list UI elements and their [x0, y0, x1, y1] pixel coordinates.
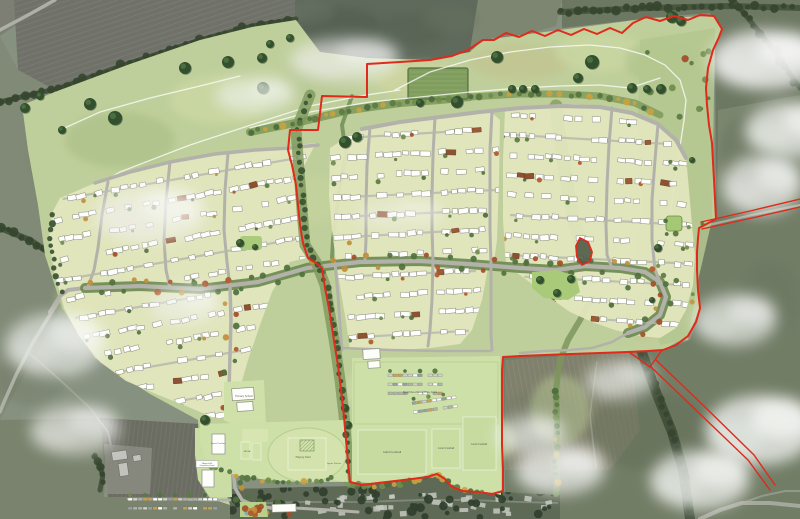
street-tree [127, 309, 131, 313]
avenue-tree [168, 280, 173, 285]
tree-highlight [59, 127, 63, 131]
house [134, 365, 143, 371]
street-tree [376, 179, 381, 184]
masterplan-screenshot: Neighbourhood Play AreaAdult FootballJun… [0, 0, 800, 519]
street-tree [232, 190, 235, 193]
house [675, 241, 684, 246]
tree-row-tree [298, 167, 305, 174]
buffer-tree [677, 114, 683, 120]
avenue-tree [628, 323, 633, 328]
cloud [495, 415, 565, 455]
village-tree [334, 500, 339, 505]
parked-car [413, 374, 417, 377]
house [453, 288, 463, 294]
tree-highlight [657, 85, 662, 90]
house [421, 191, 431, 197]
house [545, 154, 551, 159]
avenue-tree [658, 293, 663, 298]
house [583, 276, 593, 281]
street-tree [582, 280, 587, 285]
cloud [722, 155, 800, 215]
hedgerow-tree [770, 4, 779, 13]
avenue-tree [341, 265, 347, 271]
house [592, 298, 600, 303]
tree-highlight [201, 416, 206, 421]
house [341, 214, 351, 220]
map-label: Neighbourhood Play Area [403, 390, 438, 394]
parked-car [438, 374, 442, 377]
village-tree [373, 498, 378, 503]
village-tree [347, 488, 355, 496]
avenue-tree [234, 347, 239, 352]
hedgerow-tree [9, 227, 19, 237]
tree-row-tree [616, 97, 620, 101]
house [334, 235, 345, 240]
tree-row-tree [299, 199, 306, 206]
house [546, 134, 556, 139]
tree-row-tree [552, 388, 559, 395]
house [420, 151, 430, 156]
house [104, 290, 111, 296]
house [403, 331, 409, 337]
house [472, 127, 482, 132]
tree-row-tree [364, 104, 371, 111]
cloud-puff [217, 90, 257, 110]
parked-car [408, 383, 412, 386]
house [632, 218, 641, 222]
house [626, 300, 634, 305]
tree-highlight [509, 86, 513, 90]
centre-block [363, 349, 381, 360]
avenue-tree [223, 301, 228, 306]
parked-car [133, 507, 137, 510]
house [592, 117, 600, 123]
buffer-tree [661, 273, 666, 278]
house [173, 378, 182, 384]
tree-highlight [537, 277, 541, 281]
hedgerow-tree [789, 4, 795, 10]
house [417, 250, 423, 255]
parked-car [193, 498, 197, 501]
parked-car [398, 383, 402, 386]
house [633, 199, 640, 203]
street-tree [178, 344, 183, 349]
tree-row-tree [307, 116, 312, 121]
light-green-parcel [242, 429, 268, 442]
house [285, 237, 293, 242]
house [284, 177, 292, 184]
street-tree [394, 158, 397, 161]
house [357, 295, 365, 300]
hedgerow-tree [631, 5, 640, 14]
avenue-tree [286, 511, 292, 517]
cloud-puff [152, 299, 187, 321]
street-tree [197, 337, 201, 341]
cloud [650, 450, 750, 510]
avenue-tree [625, 261, 630, 266]
hedgerow-tree [589, 6, 597, 14]
avenue-tree [635, 273, 642, 280]
avenue-tree [424, 253, 429, 258]
street-tree [386, 277, 390, 281]
village-tree [542, 506, 547, 511]
buffer-tree [682, 55, 689, 62]
house [455, 129, 463, 135]
house [467, 188, 475, 192]
house [473, 287, 481, 292]
hedgerow-tree [33, 242, 41, 250]
house [410, 292, 418, 296]
house [72, 214, 79, 219]
parked-car [138, 507, 142, 510]
avenue-tree [448, 254, 453, 259]
street-tree [401, 315, 404, 318]
tree-row-tree [314, 479, 319, 484]
parked-car [398, 374, 402, 377]
house [550, 234, 558, 240]
house [613, 238, 619, 243]
map-label: Primary School [235, 394, 253, 398]
house [257, 181, 265, 187]
parked-car [433, 408, 438, 411]
street-tree [287, 200, 290, 203]
tree-row-tree [304, 234, 310, 240]
house [114, 349, 121, 355]
farm-building [111, 450, 127, 461]
buffer-tree [665, 232, 669, 236]
house [475, 148, 483, 153]
house [142, 303, 149, 308]
house [567, 257, 574, 261]
house [246, 265, 252, 270]
street-tree [494, 151, 499, 156]
tree-row-tree [56, 282, 60, 286]
house [677, 201, 687, 208]
street-tree [213, 215, 216, 218]
tree-row-tree [346, 109, 351, 114]
hedgerow-tree [558, 8, 564, 14]
cloud [5, 313, 105, 377]
parked-car [427, 399, 432, 402]
tree-row-tree [301, 216, 308, 223]
village-tree [500, 506, 505, 511]
tree-row-tree [48, 243, 53, 248]
tree-row-tree [244, 475, 251, 482]
house [529, 134, 535, 139]
house [263, 261, 270, 267]
street-tree [331, 181, 336, 186]
parked-car [403, 383, 407, 386]
tree-row-tree [297, 120, 303, 126]
tree-row-tree [476, 93, 483, 100]
street-tree [64, 281, 68, 285]
cloud-puff [695, 312, 737, 341]
avenue-tree [275, 279, 281, 285]
hedgerow-tree [582, 6, 588, 12]
buffer-tree [700, 51, 706, 57]
house [531, 235, 539, 240]
football-pitch [252, 443, 261, 460]
village-house [493, 508, 500, 513]
house [412, 191, 422, 197]
tree-highlight [628, 84, 633, 89]
parked-car [158, 498, 162, 501]
house [411, 151, 420, 156]
tree-row-tree [553, 394, 560, 401]
street-tree [401, 277, 405, 281]
parked-car [423, 409, 428, 412]
parked-car [208, 498, 212, 501]
village-house [459, 508, 468, 512]
tree-row-tree [380, 102, 386, 108]
street-tree [549, 158, 553, 162]
house [177, 357, 187, 364]
house [574, 296, 582, 301]
house [600, 298, 607, 303]
house [596, 216, 605, 222]
village-tree [418, 493, 422, 497]
house [345, 275, 354, 280]
house [458, 188, 466, 193]
street-tree [137, 330, 141, 334]
house [210, 332, 218, 337]
parked-car [433, 374, 437, 377]
parked-car [133, 498, 137, 501]
play-area-east [666, 216, 682, 231]
house [388, 232, 398, 237]
map-label: Community Centre [200, 464, 215, 467]
hedgerow-tree [667, 420, 673, 426]
parked-car [428, 374, 432, 377]
street-tree [435, 273, 440, 278]
avenue-tree [599, 270, 604, 275]
avenue-tree [233, 359, 237, 363]
village-tree [235, 502, 240, 507]
house [367, 334, 374, 339]
tree-row-tree [623, 98, 630, 105]
map-label: MUGA [244, 450, 251, 453]
hedgerow-tree [623, 4, 630, 11]
village-tree [411, 503, 419, 511]
parked-car [428, 408, 433, 411]
house [661, 321, 669, 327]
house [588, 196, 595, 202]
house [552, 214, 559, 220]
parked-car [178, 498, 182, 501]
centre-block [368, 361, 380, 369]
house [476, 188, 484, 193]
tree-highlight [353, 133, 358, 138]
house [684, 261, 693, 266]
parked-car [183, 498, 187, 501]
avenue-tree [650, 281, 656, 287]
house [465, 307, 474, 314]
tree-row-tree [319, 479, 324, 484]
tree-highlight [690, 158, 693, 161]
house [569, 197, 577, 201]
avenue-tree [656, 319, 662, 325]
avenue-tree [202, 281, 209, 288]
house [513, 233, 521, 238]
house [644, 160, 652, 165]
house [355, 274, 364, 280]
hedgerow-tree [681, 4, 688, 11]
tree-row-tree [50, 250, 55, 255]
house [384, 292, 391, 297]
village-tree [446, 495, 454, 503]
house [73, 235, 82, 240]
house [237, 266, 243, 271]
tree-row-tree [251, 475, 256, 480]
avenue-tree [260, 273, 266, 279]
parked-car [163, 498, 167, 501]
house [620, 238, 629, 244]
tree-highlight [568, 276, 572, 280]
hedgerow-tree [745, 5, 750, 10]
masterplan-aerial-map: Neighbourhood Play AreaAdult FootballJun… [0, 0, 800, 519]
parked-car [143, 498, 147, 501]
street-tree [525, 137, 529, 141]
tree-row-tree [263, 127, 268, 132]
parked-car [148, 507, 152, 510]
tree-row-tree [597, 93, 602, 98]
hedgerow-tree [611, 6, 621, 16]
house [404, 170, 412, 176]
house [120, 184, 128, 189]
hedgerow-tree [638, 353, 644, 359]
house [443, 248, 452, 253]
parked-car [418, 383, 422, 386]
street-tree [391, 336, 395, 340]
tree-row-tree [329, 475, 334, 480]
street-tree [448, 214, 451, 217]
house [399, 251, 408, 257]
tree-row-tree [312, 116, 319, 123]
avenue-tree [132, 277, 137, 282]
avenue-tree [501, 271, 506, 276]
hedgerow-tree [761, 5, 767, 11]
hedgerow-tree [750, 24, 755, 29]
tree-row-tree [60, 290, 65, 295]
village-house [400, 511, 407, 517]
hedgerow-tree [659, 403, 665, 409]
buffer-tree [690, 300, 695, 305]
avenue-tree [330, 258, 335, 263]
buffer-tree [674, 278, 680, 284]
hedgerow-tree [663, 411, 668, 416]
house [585, 217, 595, 222]
village-house [506, 512, 511, 516]
parked-car [437, 398, 442, 401]
avenue-tree [121, 289, 126, 294]
parked-car [168, 498, 172, 501]
cloud-puff [653, 471, 703, 504]
house [358, 333, 368, 339]
tree-row-tree [248, 510, 254, 516]
avenue-tree [233, 289, 239, 295]
house [466, 149, 473, 154]
hedgerow-tree [25, 236, 34, 245]
car-park-tree [432, 368, 437, 373]
house [334, 214, 342, 220]
hedgerow-tree [676, 7, 681, 12]
tree-highlight [37, 93, 41, 97]
village-tree [534, 510, 543, 519]
tree-highlight [181, 63, 186, 68]
house [365, 293, 373, 298]
parked-car [412, 401, 417, 404]
hedgerow-tree [750, 1, 759, 10]
tree-row-tree [555, 402, 560, 407]
avenue-tree [411, 253, 417, 259]
parked-car [188, 507, 192, 510]
house [525, 192, 534, 198]
house [348, 314, 355, 319]
tree-row-tree [586, 94, 593, 101]
house [520, 132, 526, 137]
tree-row-tree [297, 143, 302, 148]
street-tree [347, 240, 352, 245]
house [564, 156, 570, 160]
avenue-tree [245, 494, 250, 499]
parked-car [138, 498, 142, 501]
tree-row-tree [234, 474, 239, 479]
parked-car [418, 410, 423, 413]
house [341, 174, 347, 179]
street-tree [687, 225, 691, 229]
house [516, 213, 523, 218]
house [244, 304, 251, 310]
parked-car [438, 383, 442, 386]
house [356, 314, 366, 320]
cloud [693, 294, 777, 346]
tree-row-tree [279, 122, 286, 129]
buffer-tree [706, 48, 712, 54]
parked-car [203, 507, 207, 510]
street-tree [58, 263, 62, 267]
house [669, 181, 676, 186]
house [617, 178, 624, 184]
hedgerow-tree [671, 437, 678, 444]
house [348, 155, 357, 161]
parked-car [163, 507, 167, 510]
house [630, 260, 636, 265]
street-tree [565, 200, 569, 204]
house [599, 137, 608, 143]
meadow-mottle [470, 44, 570, 80]
hedgerow-tree [657, 396, 664, 403]
house [143, 363, 151, 368]
tree-row-tree [576, 92, 582, 98]
hedgerow-tree [574, 6, 583, 15]
tree-row-tree [290, 122, 295, 127]
hedgerow-tree [597, 8, 604, 15]
house [437, 290, 445, 294]
house [218, 269, 226, 274]
house [208, 168, 219, 175]
house [184, 275, 191, 281]
house [614, 198, 623, 204]
house [664, 141, 672, 146]
tree-highlight [587, 57, 593, 63]
map-label: Sports Pavilion [211, 442, 226, 445]
hedgerow-tree [47, 86, 55, 94]
house [375, 152, 383, 157]
buffer-tree [696, 106, 702, 112]
house [614, 218, 622, 222]
cloud [215, 77, 295, 113]
house [682, 283, 689, 288]
